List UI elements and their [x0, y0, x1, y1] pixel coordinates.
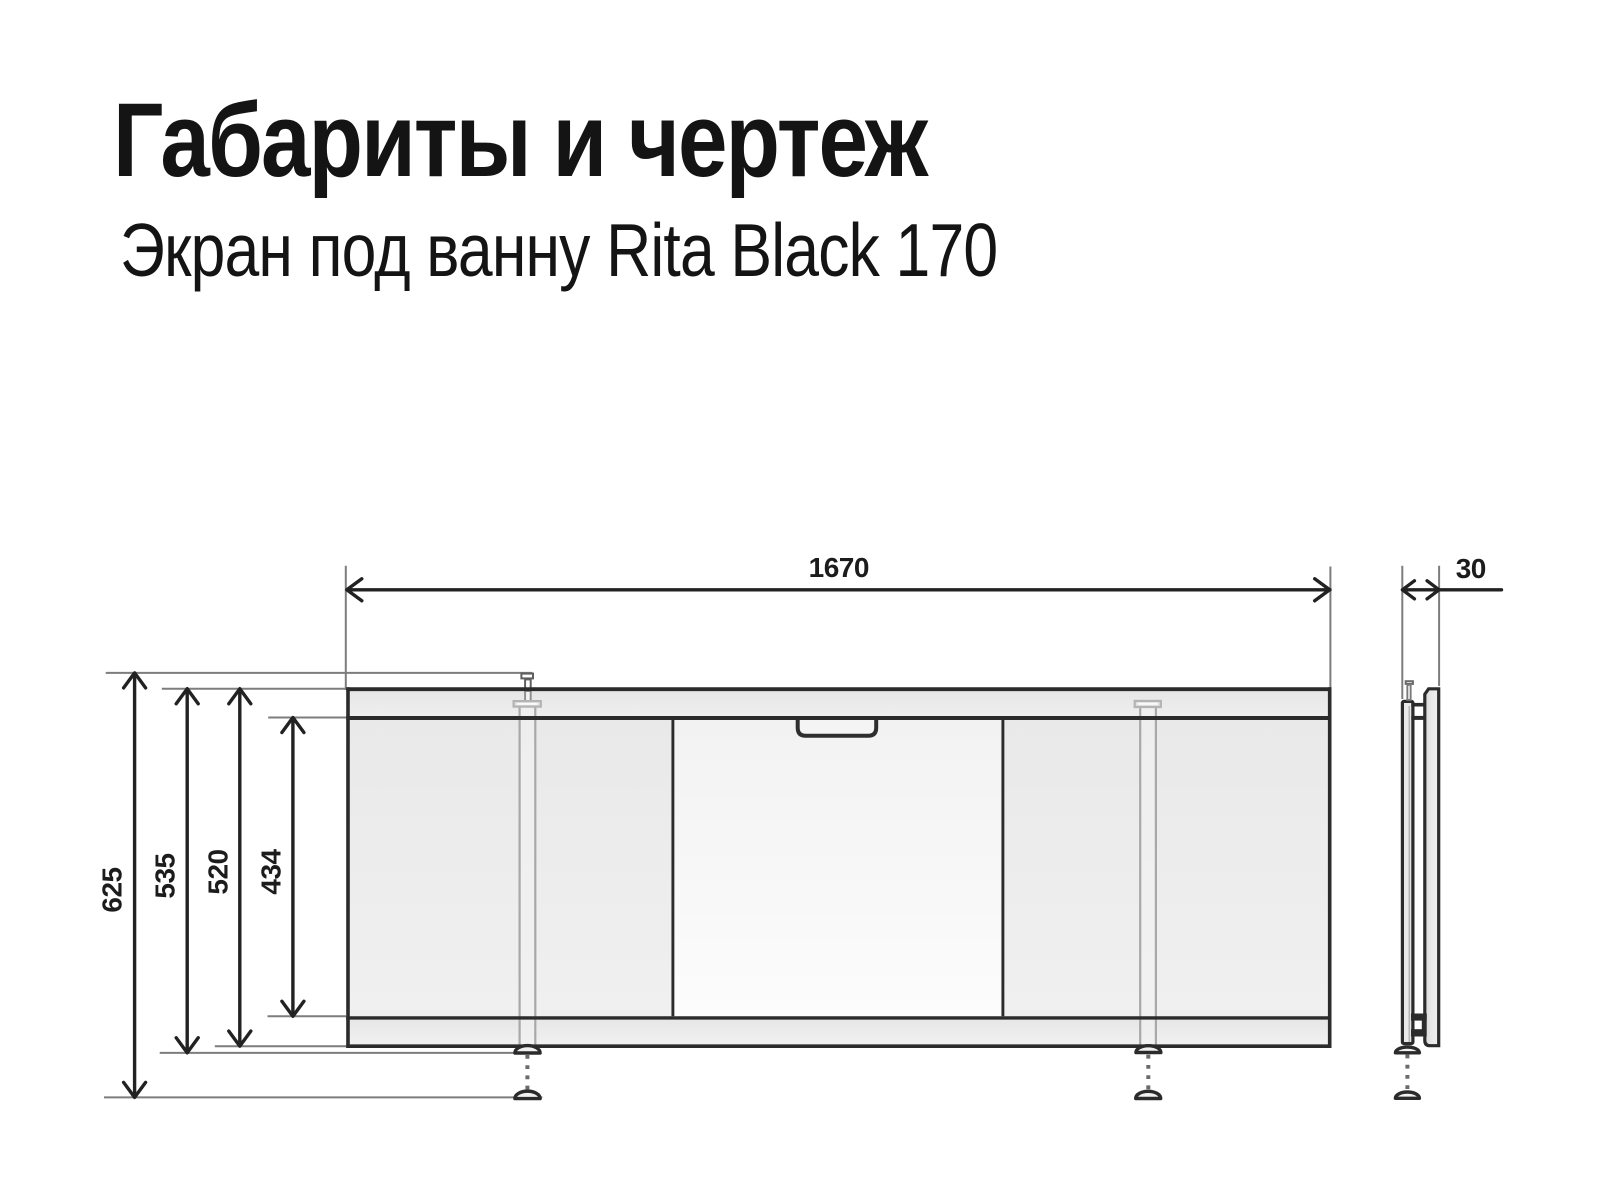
svg-text:30: 30: [1456, 553, 1486, 584]
svg-text:520: 520: [202, 849, 233, 894]
svg-text:434: 434: [256, 848, 287, 894]
svg-text:535: 535: [149, 853, 180, 898]
svg-text:1670: 1670: [809, 552, 869, 583]
svg-text:625: 625: [96, 867, 127, 912]
